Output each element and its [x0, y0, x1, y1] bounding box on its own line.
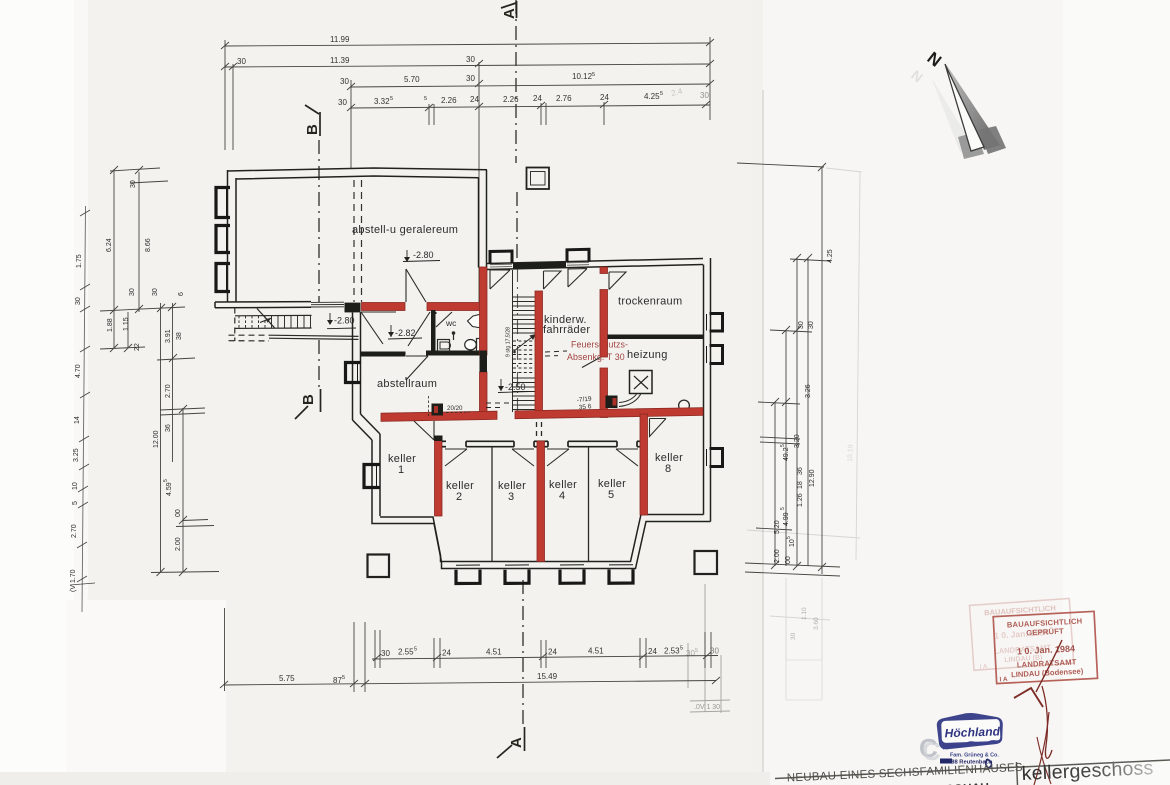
svg-text:4.70: 4.70 [75, 364, 82, 378]
svg-text:1.10: 1.10 [801, 607, 808, 620]
svg-text:3.26: 3.26 [805, 384, 812, 398]
svg-text:5: 5 [780, 444, 786, 447]
svg-text:-2.50: -2.50 [505, 382, 526, 392]
svg-text:24: 24 [442, 649, 451, 658]
svg-text:18.19: 18.19 [847, 444, 855, 462]
svg-text:fahrräder: fahrräder [543, 324, 590, 336]
svg-text:B: B [300, 394, 317, 405]
svg-text:5: 5 [786, 536, 792, 539]
svg-text:-2.80: -2.80 [413, 250, 434, 260]
svg-text:12.00: 12.00 [153, 430, 160, 448]
svg-text:11.99: 11.99 [330, 35, 350, 44]
svg-text:wc: wc [445, 318, 457, 328]
svg-text:30: 30 [130, 180, 137, 188]
svg-text:5.75: 5.75 [279, 674, 295, 683]
svg-text:30: 30 [152, 288, 159, 296]
svg-text:14: 14 [74, 416, 81, 424]
svg-text:10: 10 [789, 539, 796, 547]
svg-text:24: 24 [548, 648, 557, 657]
svg-text:30: 30 [710, 647, 719, 656]
svg-text:I A: I A [980, 663, 989, 671]
svg-text:A: A [508, 737, 525, 748]
svg-text:2.70: 2.70 [71, 524, 78, 538]
svg-text:24: 24 [648, 647, 657, 656]
svg-text:1: 1 [398, 464, 404, 476]
svg-text:5: 5 [660, 91, 663, 97]
svg-text:B: B [304, 124, 321, 135]
svg-text:2.00: 2.00 [175, 537, 182, 551]
svg-text:10.12: 10.12 [572, 72, 593, 81]
svg-text:1.15: 1.15 [123, 317, 130, 331]
svg-text:5.70: 5.70 [404, 75, 420, 84]
svg-text:Höchland: Höchland [944, 724, 1000, 740]
svg-text:abstell-u geralereum: abstell-u geralereum [352, 224, 458, 236]
svg-text:4.59: 4.59 [166, 482, 173, 496]
svg-text:4.51: 4.51 [486, 648, 502, 657]
svg-text:trockenraum: trockenraum [618, 296, 682, 308]
svg-text:30: 30 [790, 632, 797, 640]
svg-text:abstellraum: abstellraum [377, 378, 437, 390]
svg-text:2.76: 2.76 [556, 94, 572, 103]
svg-text:5: 5 [342, 675, 345, 681]
svg-text:3.25: 3.25 [73, 448, 80, 462]
svg-text:1.75: 1.75 [76, 254, 83, 268]
svg-text:I A: I A [999, 676, 1008, 683]
svg-text:heizung: heizung [627, 349, 668, 361]
svg-text:C: C [922, 736, 941, 766]
svg-text:49.2: 49.2 [783, 447, 790, 461]
svg-text:24: 24 [533, 94, 542, 103]
svg-text:5: 5 [163, 479, 169, 482]
svg-text:2.00: 2.00 [774, 549, 781, 563]
svg-text:36: 36 [797, 467, 804, 475]
svg-text:30: 30 [237, 57, 246, 66]
svg-text:30: 30 [129, 288, 136, 296]
svg-text:Feuerschutzs-: Feuerschutzs- [571, 340, 628, 350]
svg-text:5: 5 [592, 72, 595, 78]
svg-text:5: 5 [780, 507, 786, 510]
svg-text:4.51: 4.51 [588, 647, 604, 656]
svg-text:6: 6 [178, 292, 185, 296]
svg-text:5: 5 [695, 648, 698, 654]
svg-text:5: 5 [414, 647, 417, 653]
svg-text:5: 5 [424, 96, 427, 102]
svg-text:1.88: 1.88 [107, 318, 114, 332]
svg-text:8.66: 8.66 [145, 238, 152, 252]
svg-text:30: 30 [466, 55, 475, 64]
svg-text:Absenkg. T 30: Absenkg. T 30 [567, 352, 625, 362]
svg-text:30: 30 [381, 649, 390, 658]
svg-text:2.55: 2.55 [398, 648, 414, 657]
svg-text:1.26: 1.26 [797, 493, 804, 507]
svg-text:5: 5 [680, 646, 683, 652]
svg-text:12.90: 12.90 [809, 469, 816, 487]
svg-text:30: 30 [700, 91, 709, 100]
svg-text:3.32: 3.32 [374, 97, 390, 106]
svg-text:9 stg 17,5/28: 9 stg 17,5/28 [506, 327, 512, 357]
svg-text:5: 5 [72, 501, 79, 505]
svg-text:4.25: 4.25 [827, 249, 834, 263]
svg-text:2.70: 2.70 [165, 384, 172, 398]
svg-text:4.25: 4.25 [644, 92, 660, 101]
svg-text:3.60: 3.60 [813, 617, 820, 630]
svg-text:30: 30 [466, 74, 475, 83]
svg-text:2.26: 2.26 [441, 96, 457, 105]
svg-text:11.39: 11.39 [330, 56, 350, 65]
svg-text:8: 8 [665, 463, 671, 475]
svg-text:2: 2 [456, 491, 462, 503]
svg-text:00: 00 [175, 509, 182, 517]
svg-text:30: 30 [340, 77, 349, 86]
svg-text:.0V 1 30: .0V 1 30 [694, 704, 720, 711]
svg-text:10: 10 [72, 482, 79, 490]
svg-text:4: 4 [559, 490, 565, 502]
svg-text:36: 36 [165, 424, 172, 432]
svg-text:18: 18 [797, 481, 804, 489]
svg-text:-2.82: -2.82 [395, 328, 416, 338]
svg-text:-2.80: -2.80 [334, 316, 355, 326]
svg-text:4.99: 4.99 [783, 512, 790, 526]
svg-text:2.26: 2.26 [503, 95, 519, 104]
svg-text:5: 5 [608, 489, 614, 501]
svg-text:30: 30 [338, 98, 347, 107]
svg-text:3.20: 3.20 [794, 434, 801, 448]
svg-text:22: 22 [134, 343, 141, 351]
svg-text:15.49: 15.49 [537, 672, 558, 681]
svg-text:3.91: 3.91 [165, 329, 172, 343]
svg-text:(V 1.70: (V 1.70 [70, 569, 77, 592]
svg-text:38: 38 [176, 332, 183, 340]
svg-text:24: 24 [470, 95, 479, 104]
svg-text:30: 30 [75, 297, 82, 305]
svg-text:6.24: 6.24 [106, 238, 113, 252]
svg-text:30: 30 [808, 321, 815, 329]
svg-text:5: 5 [390, 96, 393, 102]
svg-text:00: 00 [785, 556, 792, 564]
svg-text:24: 24 [600, 93, 609, 102]
svg-text:2.53: 2.53 [664, 647, 680, 656]
svg-text:3: 3 [508, 491, 514, 503]
svg-text:A: A [501, 8, 518, 19]
svg-text:Fam. Grüneg & Co.: Fam. Grüneg & Co. [950, 753, 999, 759]
svg-text:20/20: 20/20 [447, 405, 463, 412]
svg-text:30: 30 [798, 321, 805, 329]
